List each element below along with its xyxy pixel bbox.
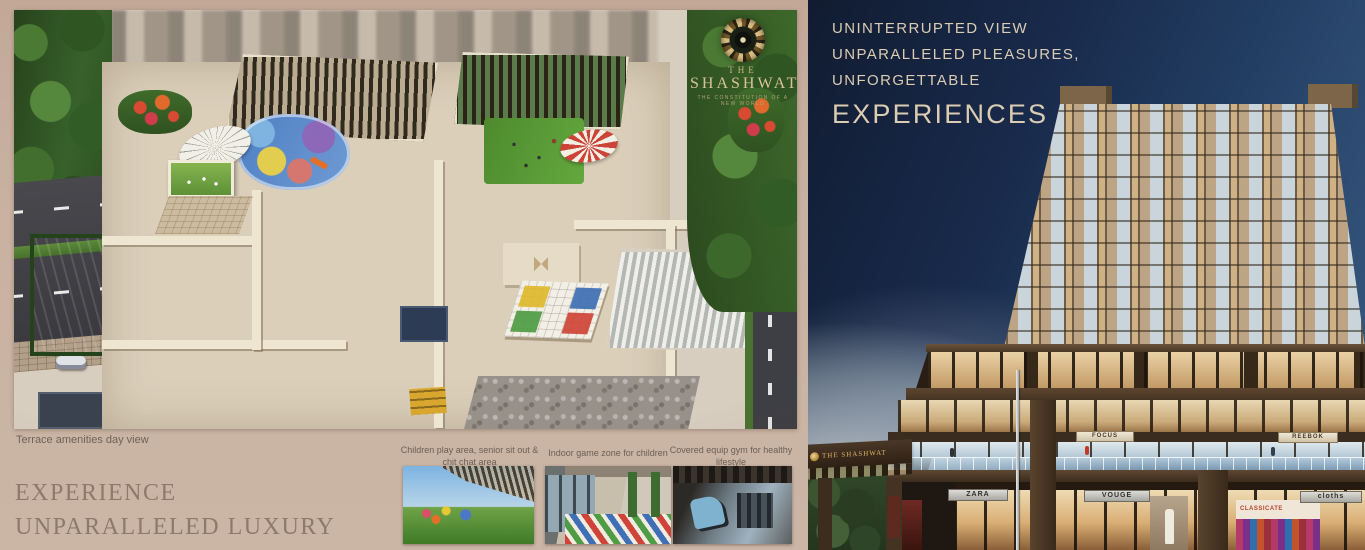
children-play-area — [238, 114, 350, 190]
thumbnail-gym — [673, 466, 792, 544]
person-silhouette — [1271, 447, 1275, 456]
brand-logo: THE SHASHWAT THE CONSTITUTION OF A NEW W… — [690, 18, 796, 107]
gate-column-poster — [888, 496, 900, 538]
podium-beam — [868, 470, 1365, 482]
gate-logo-icon — [810, 452, 819, 461]
flag-pole — [1016, 370, 1019, 550]
page-heading: EXPERIENCE UNPARALLELED LUXURY — [15, 476, 375, 544]
terrace-render-image: THE SHASHWAT THE CONSTITUTION OF A NEW W… — [14, 10, 797, 429]
retail-glass-row — [886, 442, 1365, 457]
parapet-wall — [102, 340, 346, 349]
brochure-spread: THE SHASHWAT THE CONSTITUTION OF A NEW W… — [0, 0, 1365, 550]
headline-block: UNINTERRUPTED VIEW UNPARALLELED PLEASURE… — [832, 16, 1080, 130]
render-caption: Terrace amenities day view — [16, 434, 149, 446]
glass-balustrade — [882, 457, 1365, 471]
poster-brand-text: CLASSICATE — [1240, 506, 1283, 512]
poster-figure — [1165, 509, 1173, 544]
logo-name: SHASHWAT — [690, 75, 796, 93]
water-feature — [400, 306, 448, 342]
thumbnail-game-zone — [545, 466, 671, 544]
headline-line: UNINTERRUPTED VIEW — [832, 16, 1080, 42]
roof-motif — [534, 257, 548, 271]
shop-sign-cloths: cloths — [1300, 491, 1362, 503]
stone-courtyard — [155, 196, 253, 234]
thumb-gym-ceiling — [673, 466, 792, 483]
headline-line: UNPARALLELED PLEASURES, — [832, 42, 1080, 68]
person-silhouette — [1085, 446, 1089, 455]
podium-pilaster — [1030, 400, 1056, 550]
ludo-quadrant-red — [561, 312, 593, 334]
poster-figures — [1236, 519, 1320, 550]
left-page: THE SHASHWAT THE CONSTITUTION OF A NEW W… — [0, 0, 808, 550]
headline-line: UNFORGETTABLE — [832, 68, 1080, 94]
logo-the: THE — [690, 65, 796, 75]
shop-sign-zara: ZARA — [948, 489, 1008, 501]
person-silhouette — [950, 448, 954, 457]
shop-sign-reebok: REEBOK — [1278, 432, 1338, 443]
thumbnail-play-area — [403, 466, 534, 544]
parapet-wall — [102, 236, 252, 245]
sun-loungers — [409, 387, 447, 415]
podium-beam — [906, 388, 1365, 400]
thumbnail-caption: Indoor game zone for children — [538, 447, 678, 459]
thumb-gym-machines — [737, 493, 773, 529]
parapet-wall — [252, 190, 261, 350]
podium-pilaster — [1198, 470, 1228, 550]
dark-courtyard — [38, 392, 110, 429]
retail-floor-upper — [928, 352, 1365, 388]
ludo-quadrant-blue — [570, 287, 602, 309]
thumbnail-caption: Covered equip gym for healthy lifestyle — [664, 444, 798, 468]
flower-bed — [118, 90, 192, 134]
podium-beam — [926, 344, 1365, 352]
thumbnail-caption: Children play area, senior sit out & chi… — [396, 444, 543, 468]
ludo-quadrant-green — [510, 311, 542, 333]
outdoor-movie-screen — [168, 160, 234, 198]
saree-ad-poster: CLASSICATE — [1236, 500, 1320, 550]
shop-sign-focus: FOCUS — [1076, 431, 1134, 442]
gate-column — [818, 478, 832, 550]
ludo-game-floor — [503, 280, 608, 339]
ludo-quadrant-yellow — [518, 286, 550, 308]
headline-emphasis: EXPERIENCES — [832, 99, 1080, 130]
cobble-courtyard — [464, 376, 700, 429]
thumb-green-wall — [651, 472, 660, 517]
shop-sign-vouge: VOUGE — [1084, 490, 1150, 502]
logo-tagline: THE CONSTITUTION OF A NEW WORLD — [690, 95, 796, 107]
retail-floor-middle — [898, 400, 1365, 432]
right-page: UNINTERRUPTED VIEW UNPARALLELED PLEASURE… — [808, 0, 1365, 550]
brand-swirl-icon — [721, 18, 765, 62]
thumb-ludo-floor — [565, 514, 671, 544]
thumb-play-equipment — [411, 500, 490, 527]
roof-cube — [503, 243, 579, 285]
parked-car — [56, 356, 86, 369]
fashion-poster — [1150, 496, 1188, 550]
gate-sign-text: THE SHASHWAT — [822, 448, 887, 459]
thumb-green-wall — [628, 472, 637, 517]
